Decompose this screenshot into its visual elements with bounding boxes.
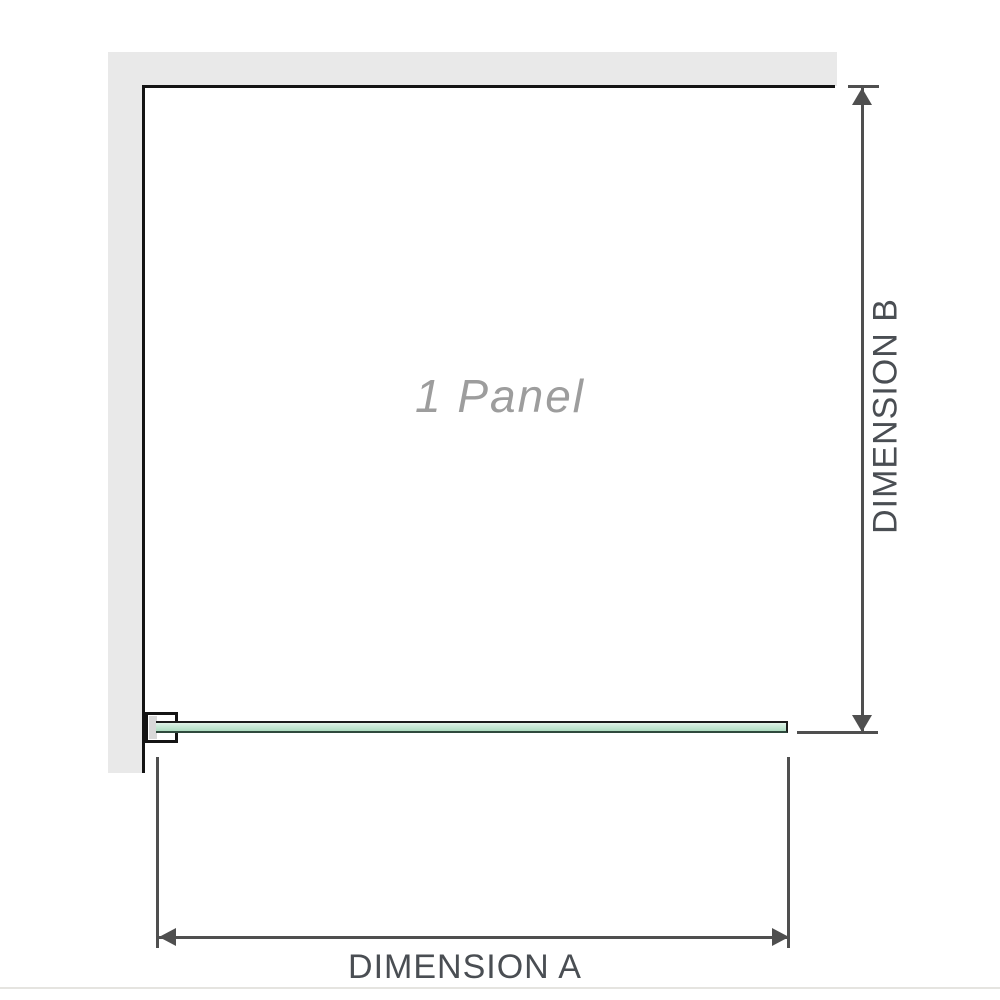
- dimension-a-extension-right: [787, 757, 790, 948]
- wall-inner-edge-left: [142, 85, 145, 773]
- arrowhead-down-icon: [852, 715, 872, 732]
- arrowhead-left-icon: [159, 928, 176, 946]
- shower-panel-diagram: DIMENSION B DIMENSION A 1 Panel: [0, 0, 1000, 1000]
- wall-left: [108, 52, 142, 773]
- dimension-a-extension-left: [156, 757, 159, 948]
- dimension-b-line: [861, 88, 864, 732]
- dimension-b-label: DIMENSION B: [867, 298, 906, 534]
- dimension-a-line: [159, 936, 789, 939]
- arrowhead-right-icon: [772, 928, 789, 946]
- wall-inner-edge-top: [143, 85, 835, 88]
- bottom-divider: [0, 987, 1000, 989]
- wall-top: [108, 52, 837, 86]
- panel-count-label: 1 Panel: [415, 369, 585, 423]
- arrowhead-up-icon: [852, 88, 872, 105]
- dimension-a-label: DIMENSION A: [348, 948, 582, 987]
- glass-panel: [156, 721, 788, 733]
